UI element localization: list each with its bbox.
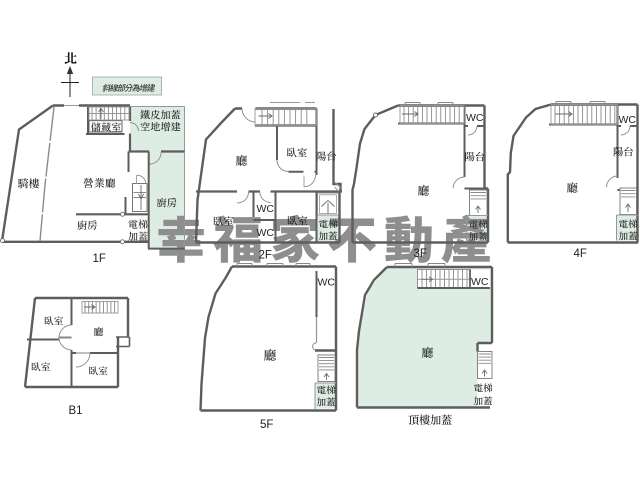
svg-text:2F: 2F — [259, 250, 272, 262]
svg-text:B1: B1 — [69, 405, 83, 417]
svg-text:WC: WC — [619, 114, 637, 126]
svg-text:WC: WC — [466, 112, 484, 124]
svg-text:3F: 3F — [414, 248, 427, 260]
svg-text:5F: 5F — [260, 419, 273, 431]
svg-text:WC: WC — [318, 277, 336, 289]
svg-text:1F: 1F — [93, 253, 106, 265]
svg-text:WC: WC — [471, 276, 489, 288]
svg-text:WC: WC — [257, 203, 275, 215]
svg-text:WC: WC — [257, 227, 275, 239]
svg-text:4F: 4F — [574, 248, 587, 260]
